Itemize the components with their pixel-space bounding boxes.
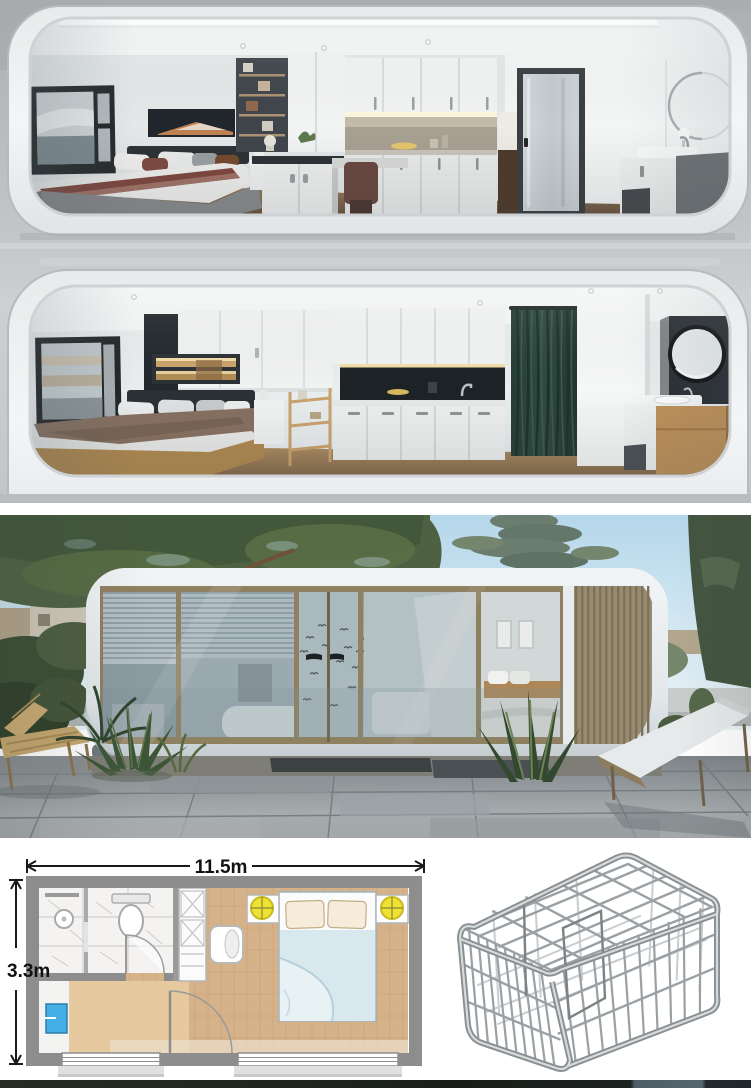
- svg-text:3.3m: 3.3m: [7, 961, 50, 982]
- svg-text:11.5m: 11.5m: [195, 857, 248, 878]
